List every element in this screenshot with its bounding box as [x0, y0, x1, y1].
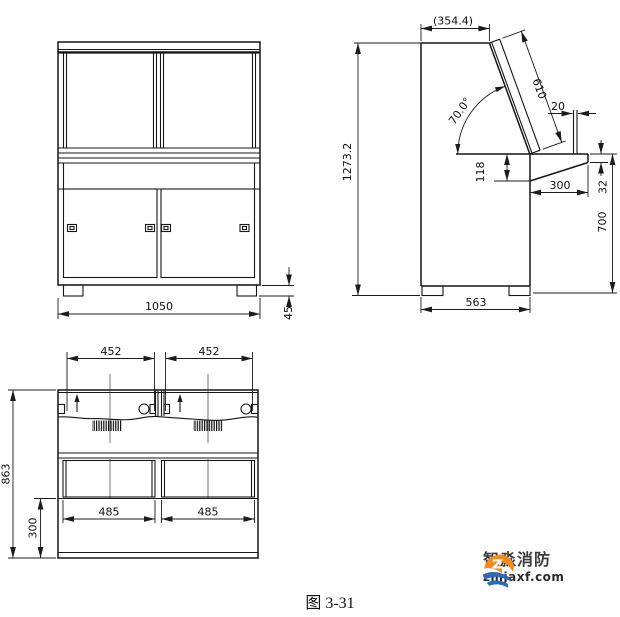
dim-panel-angle: 70.0° [446, 95, 474, 127]
dim-overall-height: 1273.2 [341, 143, 354, 182]
dim-base-depth: 563 [466, 296, 487, 309]
dim-ledge-width: 20 [551, 100, 565, 113]
figure-caption: 图 3-31 [240, 589, 420, 613]
side-foot-right [509, 286, 530, 296]
dim-front-width: 1050 [145, 300, 173, 313]
watermark-logo: 智淼消防 zmjaxf.com [479, 552, 564, 583]
dim-door-width-right: 485 [198, 506, 219, 519]
dim-top-depth: (354.4) [433, 15, 473, 28]
front-view: 1050 45 [58, 42, 295, 320]
front-foot-left [64, 285, 84, 296]
dim-desk-height: 700 [596, 212, 609, 233]
orientation-arrows [74, 394, 182, 412]
lock-circle-right [241, 404, 251, 414]
side-foot-left [422, 286, 443, 296]
lower-doors [64, 189, 255, 278]
break-line [58, 416, 258, 420]
rear-view: 452 452 485 485 863 300 [0, 345, 258, 558]
rear-lower-panels [63, 461, 255, 498]
tilted-panel [489, 39, 540, 154]
lock-circle-left [139, 404, 149, 414]
dim-base-height: 300 [27, 518, 40, 539]
front-foot-right [237, 285, 257, 296]
technical-drawing: 1050 45 1273.2 (354.4) [0, 0, 620, 617]
side-view: 1273.2 (354.4) 610 70.0° [341, 15, 617, 314]
glass-doors [64, 54, 256, 149]
dim-span-right: 452 [199, 345, 220, 358]
dim-desk-overhang: 300 [550, 179, 571, 192]
dim-desk-edge: 32 [597, 180, 610, 194]
vent-grille-left [92, 421, 122, 432]
dim-span-left: 452 [101, 345, 122, 358]
dim-panel-length: 610 [530, 77, 549, 101]
dim-rear-height: 863 [0, 464, 13, 485]
door-handles [68, 225, 250, 232]
logo-icon [479, 552, 517, 592]
vent-grille-right [193, 421, 223, 432]
dim-door-width-left: 485 [99, 506, 120, 519]
drawing-sheet: 1050 45 1273.2 (354.4) [0, 0, 620, 617]
dim-foot-height: 45 [282, 306, 295, 320]
dim-under-desk-drop: 118 [474, 162, 487, 183]
